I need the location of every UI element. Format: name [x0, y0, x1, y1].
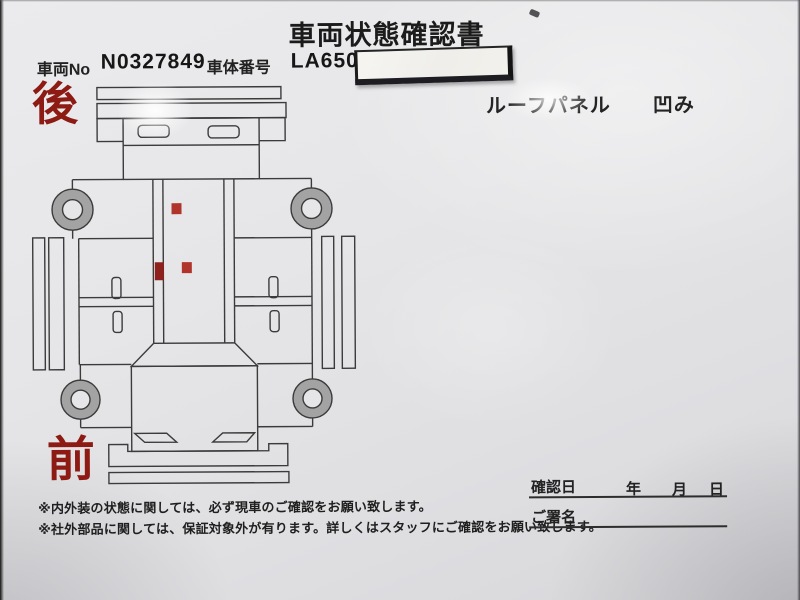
- body-no-label: 車体番号: [207, 54, 271, 78]
- footer-notes: ※内外装の状態に関しては、必ず現車のご確認をお願い致します。 ※社外部品に関して…: [38, 495, 602, 540]
- front-bumper-lower: [109, 472, 289, 484]
- tailgate: [123, 118, 259, 180]
- photographed-document: 車両状態確認書 車両No N0327849 車体番号 LA650S ルーフパネル…: [0, 0, 800, 600]
- side-moulding-left-outer: [33, 238, 46, 370]
- roof-rail-outer-left: [153, 179, 154, 343]
- taillight-right: [208, 126, 239, 138]
- car-damage-diagram: [19, 80, 361, 512]
- wheel-rear-left: [52, 189, 93, 230]
- note-line: ※社外部品に関しては、保証対象外が有ります。詳しくはスタッフにご確認をお願い致し…: [38, 516, 602, 540]
- wheel-front-right: [293, 379, 332, 418]
- side-moulding-right-outer: [342, 236, 356, 368]
- document-sheet: 車両状態確認書 車両No N0327849 車体番号 LA650S ルーフパネル…: [0, 0, 800, 600]
- side-moulding-right-inner: [322, 236, 335, 368]
- vehicle-no-label: 車両No: [37, 56, 90, 80]
- redaction-sticker: [354, 45, 513, 85]
- roof-rail-inner-left: [163, 179, 164, 343]
- vehicle-no-value: N0327849: [101, 50, 206, 75]
- photo-edge: [0, 0, 800, 2]
- wheel-rear-right: [291, 188, 332, 229]
- rear-panel: [97, 118, 285, 142]
- left-door-edge: [79, 239, 80, 365]
- right-front-door-handle: [270, 311, 279, 332]
- ink-speck: [529, 9, 541, 19]
- tailgate-line: [123, 145, 259, 146]
- right-door-edge: [312, 237, 313, 363]
- confirm-date-label: 確認日: [531, 476, 576, 497]
- roof-rail-outer-right: [234, 179, 235, 343]
- side-moulding-left-inner: [49, 238, 65, 370]
- signature-label: ご署名: [531, 506, 576, 527]
- left-front-door-handle: [113, 311, 122, 332]
- right-rear-door-handle: [269, 277, 278, 298]
- headlight-left: [135, 433, 177, 442]
- taillight-left: [138, 125, 169, 137]
- headlight-right: [213, 433, 255, 442]
- windshield: [131, 343, 257, 367]
- roof-rail-inner-right: [224, 179, 225, 343]
- hood: [131, 366, 257, 452]
- note-line: ※内外装の状態に関しては、必ず現車のご確認をお願い致します。: [38, 495, 602, 519]
- damage-type: 凹み: [653, 88, 695, 117]
- rear-bumper-lower: [97, 103, 286, 119]
- front-bumper-upper: [109, 444, 288, 467]
- camera-glare: [360, 229, 621, 430]
- left-rear-door-handle: [112, 277, 121, 298]
- damage-note: ルーフパネル 凹み: [486, 88, 695, 118]
- damage-part: ルーフパネル: [486, 89, 611, 119]
- confirmation-block: 確認日 年 月 日 ご署名: [529, 475, 727, 476]
- wheel-front-left: [61, 380, 100, 419]
- signature-line: [529, 525, 727, 528]
- rear-bumper-upper: [97, 87, 281, 100]
- photo-edge: [0, 0, 4, 600]
